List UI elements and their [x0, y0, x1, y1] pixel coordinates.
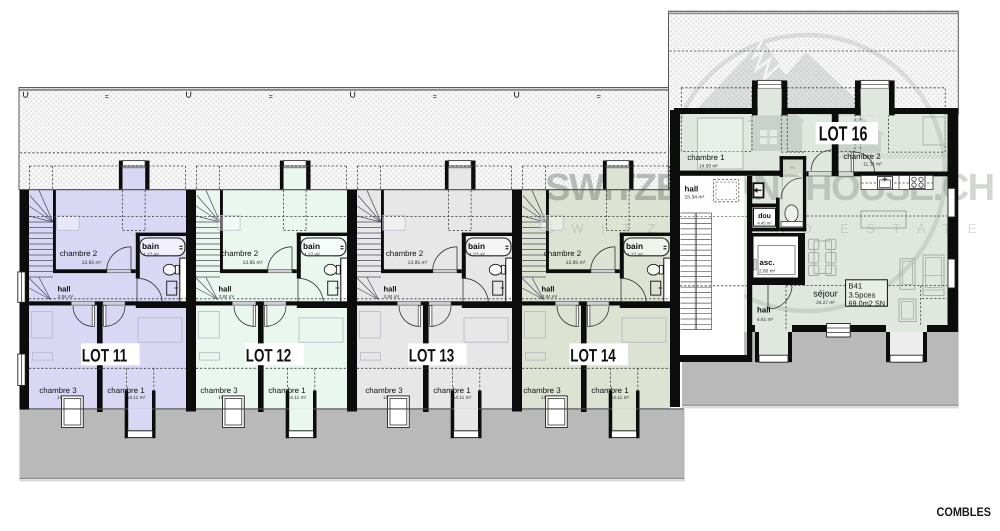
svg-text:hall: hall	[57, 284, 70, 293]
svg-text:14.11 m²: 14.11 m²	[288, 395, 307, 401]
svg-text:69.0m2 SN: 69.0m2 SN	[849, 299, 886, 308]
svg-text:LOT 11: LOT 11	[82, 345, 128, 365]
svg-text:LOT 13: LOT 13	[409, 345, 455, 365]
svg-text:3.84 m²: 3.84 m²	[542, 294, 558, 299]
svg-text:LOT 16: LOT 16	[819, 122, 868, 145]
svg-text:COMBLES: COMBLES	[937, 505, 992, 519]
svg-text:chambre 1: chambre 1	[687, 153, 724, 162]
svg-text:3.84 m²: 3.84 m²	[219, 294, 235, 299]
svg-text:3.84 m²: 3.84 m²	[58, 294, 74, 299]
svg-text:B41: B41	[849, 281, 863, 290]
svg-text:bain: bain	[142, 241, 159, 251]
svg-text:LOT 12: LOT 12	[246, 345, 292, 365]
svg-text:hall: hall	[218, 284, 231, 293]
svg-text:13.85 m²: 13.85 m²	[82, 260, 102, 266]
svg-text:wc: wc	[790, 165, 795, 170]
svg-text:14.11 m²: 14.11 m²	[453, 395, 472, 401]
svg-text:dou: dou	[758, 212, 771, 220]
svg-text:14.50 m²: 14.50 m²	[699, 164, 718, 170]
svg-text:13.85 m²: 13.85 m²	[243, 260, 263, 266]
svg-text:4.27 m²: 4.27 m²	[143, 252, 159, 257]
svg-text:4.27 m²: 4.27 m²	[304, 252, 320, 257]
svg-text:15.34 m²: 15.34 m²	[685, 195, 705, 201]
svg-text:11.31 m²: 11.31 m²	[863, 162, 882, 168]
svg-text:14.11 m²: 14.11 m²	[127, 395, 146, 401]
svg-text:asc.: asc.	[760, 258, 775, 267]
svg-text:3.84 m²: 3.84 m²	[384, 294, 400, 299]
svg-text:chambre 2: chambre 2	[221, 249, 258, 258]
svg-text:séjour: séjour	[813, 289, 838, 299]
svg-text:34.27 m²: 34.27 m²	[816, 300, 835, 306]
svg-text:hall: hall	[757, 306, 771, 315]
svg-text:4.61 m²: 4.61 m²	[757, 317, 774, 323]
svg-text:chambre 2: chambre 2	[386, 249, 423, 258]
svg-text:bain: bain	[303, 241, 320, 251]
svg-text:chambre 2: chambre 2	[843, 152, 880, 161]
svg-text:4.45 m²: 4.45 m²	[757, 221, 772, 226]
svg-text:LOT 14: LOT 14	[570, 345, 616, 365]
svg-text:chambre 3: chambre 3	[39, 386, 77, 395]
svg-text:hall: hall	[541, 284, 554, 293]
svg-text:13.85 m²: 13.85 m²	[566, 260, 586, 266]
svg-text:bain: bain	[468, 241, 485, 251]
svg-text:2.80 m²: 2.80 m²	[759, 268, 776, 274]
svg-text:13.85 m²: 13.85 m²	[408, 260, 428, 266]
svg-text:14.11 m²: 14.11 m²	[611, 395, 630, 401]
svg-text:chambre 2: chambre 2	[544, 249, 581, 258]
svg-text:hall: hall	[383, 284, 396, 293]
svg-text:hall: hall	[685, 185, 699, 194]
svg-text:chambre 2: chambre 2	[60, 249, 97, 258]
svg-text:chambre 3: chambre 3	[365, 386, 403, 395]
svg-text:4.27 m²: 4.27 m²	[627, 252, 643, 257]
svg-text:4.27 m²: 4.27 m²	[469, 252, 485, 257]
svg-text:chambre 3: chambre 3	[200, 386, 238, 395]
svg-text:chambre 3: chambre 3	[523, 386, 561, 395]
svg-text:bain: bain	[626, 241, 643, 251]
